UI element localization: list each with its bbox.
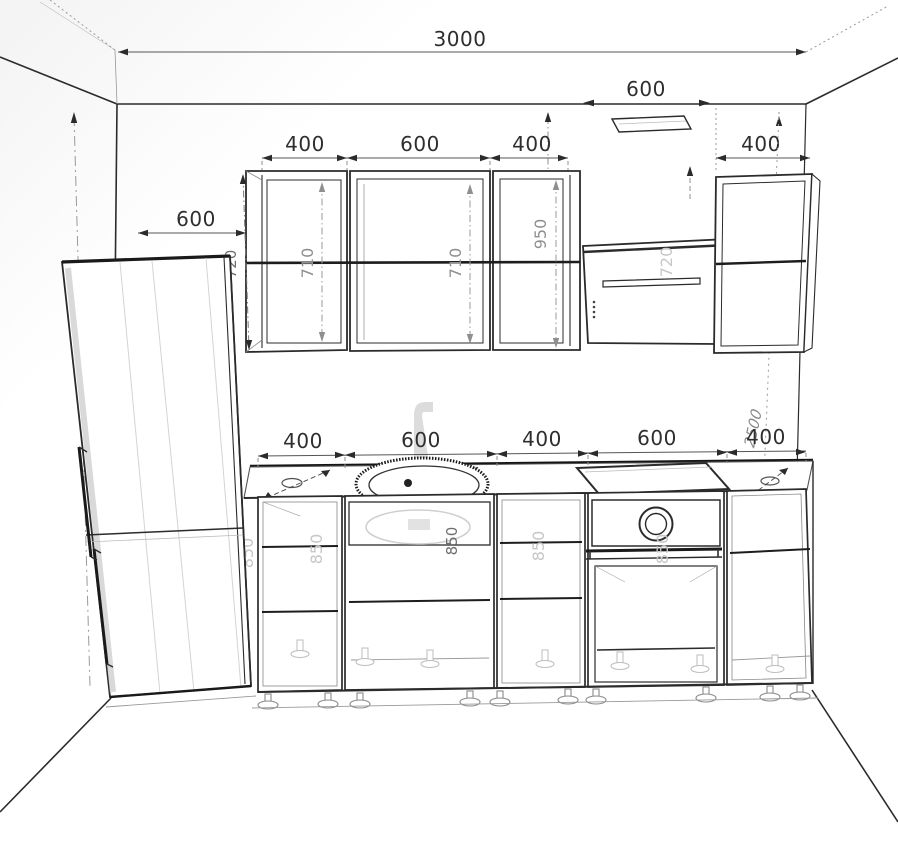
dim-base-height-3: 850 [443,527,461,556]
dim-base-height-4: 850 [529,531,548,562]
cooktop [577,463,729,494]
wall-cabinet-shelf-line [246,262,580,263]
dim-upper-2: 600 [400,132,440,156]
wall-cabinets [246,171,580,352]
base-cabinet-1 [258,496,342,692]
dim-upper-1: 400 [285,132,325,156]
base-cabinet-3 [497,493,585,688]
base-cabinets: 850 850 850 850 [238,489,818,709]
dim-upper-3: 400 [512,132,552,156]
range-hood: 720 [583,239,729,344]
kitchen-elevation-drawing: 3000 600 400 600 400 400 [0,0,898,842]
dim-upper-inner-height-1: 710 [298,248,317,279]
dim-vent-width-label: 600 [626,77,666,101]
dim-total-width-label: 3000 [434,27,487,51]
dim-base-height-2: 850 [307,534,326,565]
dim-base-2: 600 [401,428,441,452]
dim-base-4: 600 [637,426,677,450]
dim-base-3: 400 [522,427,562,451]
base-cabinet-5 [727,489,812,685]
dim-left-offset-label: 600 [176,207,216,231]
wall-cabinet-3 [493,171,580,350]
dim-upper-inner-height-2: 710 [446,248,465,279]
dim-base-1: 400 [283,429,323,453]
dim-upper-right-inner: 950 [531,219,550,250]
drawing-canvas: 3000 600 400 600 400 400 [0,0,898,842]
wall-cabinet-2 [350,171,490,351]
dim-hood-height: 720 [657,247,676,278]
dim-base-height-5: 850 [653,534,672,565]
dim-upper-right-label: 400 [741,132,781,156]
wall-vent [612,116,691,132]
dim-base-5: 400 [746,425,786,449]
sink-drain [404,479,412,487]
